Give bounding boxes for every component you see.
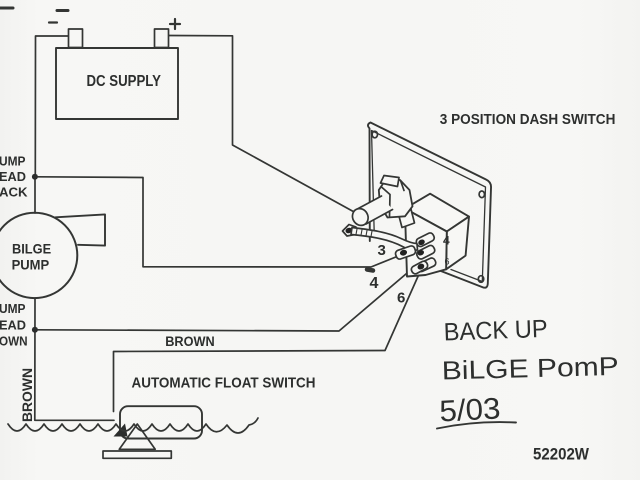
- svg-text:UMP: UMP: [0, 155, 26, 169]
- svg-text:5/03: 5/03: [439, 392, 502, 428]
- svg-text:EAD: EAD: [0, 319, 26, 333]
- svg-text:BROWN: BROWN: [19, 368, 35, 422]
- svg-text:BILGE: BILGE: [12, 241, 51, 257]
- svg-text:ACK: ACK: [0, 186, 28, 200]
- svg-text:BROWN: BROWN: [165, 333, 215, 349]
- svg-text:DC SUPPLY: DC SUPPLY: [87, 73, 162, 90]
- svg-text:BiLGE PomP: BiLGE PomP: [441, 351, 619, 386]
- svg-text:3 POSITION DASH SWITCH: 3 POSITION DASH SWITCH: [440, 111, 616, 128]
- svg-text:6: 6: [445, 257, 450, 267]
- svg-text:PUMP: PUMP: [12, 257, 50, 273]
- svg-text:4: 4: [370, 275, 379, 292]
- svg-text:BACK UP: BACK UP: [443, 315, 548, 347]
- svg-text:52202W: 52202W: [533, 446, 589, 464]
- svg-text:OWN: OWN: [0, 335, 28, 349]
- svg-text:AUTOMATIC FLOAT SWITCH: AUTOMATIC FLOAT SWITCH: [132, 375, 316, 391]
- svg-text:3: 3: [378, 242, 386, 259]
- svg-text:4: 4: [443, 234, 450, 248]
- svg-text:UMP: UMP: [0, 302, 26, 316]
- svg-text:EAD: EAD: [0, 170, 26, 184]
- svg-text:6: 6: [397, 290, 405, 307]
